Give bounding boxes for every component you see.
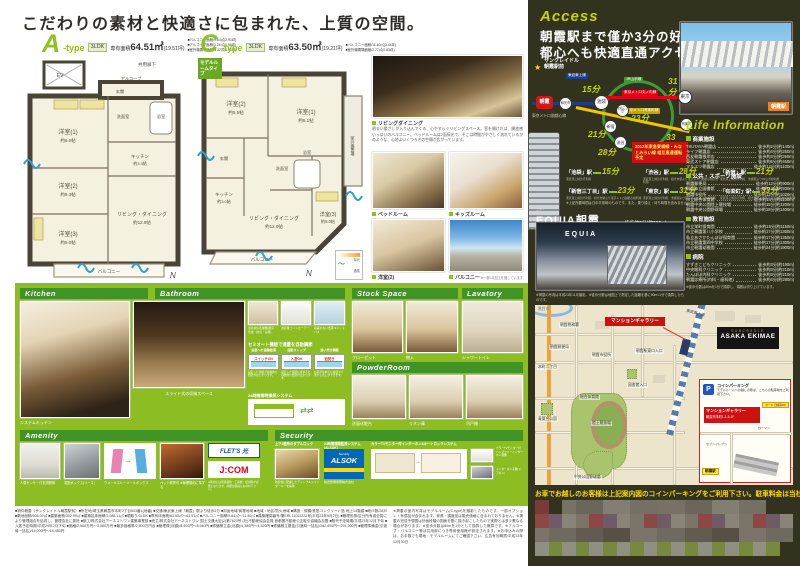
vanity-photo (352, 375, 406, 419)
house-section-icon (254, 404, 294, 418)
room2-size-c: 約5.5帖 (228, 109, 244, 116)
amenity-note: ※利用には別途契約・工事費・使用料が必要となります。詳細は係員にお尋ね下さい。 (208, 481, 260, 492)
future-service-note: 2012年東急東横線・みなとみらい線 相互直通運転予定 (632, 142, 688, 163)
balcony-caption: バルコニー (449, 274, 480, 281)
step3-description: お湯が冷めても適温まで沸かし直しができます。 (314, 371, 345, 378)
dotted-leader (721, 162, 757, 163)
small-park (627, 369, 637, 379)
bath-controller-photo (281, 301, 311, 325)
mosaic-cell (562, 528, 576, 542)
bath-step-3: 追い焚き機能 追焚き お湯が冷めても適温まで沸かし直しができます。 (314, 349, 345, 377)
life-item: マルエツ朝霞店徒歩約14分(約1100m) (686, 164, 794, 169)
water-icon (251, 361, 276, 367)
life-walk-note: ※徒歩分数は80mを1分で換算し、端数は切り上げています。 (686, 285, 794, 290)
storage-photo (406, 301, 458, 353)
mosaic-cell (576, 542, 590, 556)
inset-gallery-box: マンションギャラリー 朝霞市本町1-1-5-1F (704, 407, 760, 423)
kitchen-size-a: 約3.3帖 (133, 160, 147, 166)
mailbox-caption: ウォールスルーメールボックス (104, 481, 156, 485)
mosaic-cell (698, 542, 712, 556)
mosaic-cell (780, 514, 794, 528)
minutes-shibuya: 28分 (598, 146, 616, 158)
water-icon (284, 361, 309, 367)
mosaic-cell (617, 500, 631, 514)
step3-heading: 追い焚き機能 (314, 349, 345, 353)
western-room-caption: 洋室(2) (372, 274, 394, 281)
bedroom-photo (372, 152, 445, 209)
mosaic-cell (576, 514, 590, 528)
compass-c: N (306, 269, 312, 278)
room3-label-a: 洋室(3) (58, 230, 77, 238)
dotted-leader (717, 248, 752, 249)
step1-heading: 浴室への自動給湯 (248, 349, 279, 353)
marunouchi-line-label: 東京メトロ丸ノ内線 (622, 90, 658, 96)
kitchen-label-c: キッチン (215, 192, 233, 197)
access-title: Access (540, 8, 599, 25)
mosaic-cell (630, 514, 644, 528)
mosaic-cell (753, 542, 767, 556)
mosaic-cell (739, 514, 753, 528)
mosaic-cell (698, 514, 712, 528)
parking-icon: P (703, 384, 714, 395)
unit-bath-caption: 段差のない低床ユニットバス (314, 327, 345, 334)
station-photo: 朝霞駅 (680, 22, 792, 114)
mosaic-cell (712, 528, 726, 542)
cabinet-caption: 吊戸棚 (466, 421, 478, 426)
plan-c-layout-badge: 3LDK (246, 43, 266, 52)
wind-label: 通風 (338, 268, 360, 273)
dotted-leader (733, 265, 756, 266)
mosaic-cell (685, 528, 699, 542)
alsok-logo-text: ALSOK (324, 456, 364, 465)
mosaic-cell (549, 528, 563, 542)
mosaic-cell (589, 500, 603, 514)
plan-a-area-tsubo: (19.51坪) (164, 46, 185, 52)
room3-size-a: 約5.0帖 (60, 239, 76, 246)
mosaic-cell (589, 542, 603, 556)
bedroom-caption: ベッドルーム (372, 211, 408, 218)
station-roof-structure (681, 41, 793, 67)
life-information-title: Life Information (686, 118, 794, 132)
censored-region (535, 500, 793, 558)
equia-photo: EQUIA (536, 222, 684, 290)
equia-ruby: エキア (536, 207, 686, 211)
room1-label-a: 洋室(1) (58, 128, 77, 136)
lobby-illustration (375, 453, 415, 473)
dotted-leader (717, 157, 757, 158)
unit-bath-photo (314, 301, 345, 325)
mosaic-cell (698, 528, 712, 542)
toilet-photo (462, 301, 523, 353)
closet (54, 100, 78, 109)
station-ikebukuro: 池袋 (594, 95, 609, 110)
mosaic-cell (644, 514, 658, 528)
person-silhouette-blue (135, 449, 148, 473)
inset-platforms (733, 454, 779, 477)
vent-system-diagram: ⇄⇄ (248, 399, 345, 425)
dotted-leader (713, 152, 757, 153)
map-label-baseball: 中央公園野球場 (573, 475, 602, 480)
station-name: 「池袋」駅 (566, 169, 592, 176)
life-category-title: 商業施設 (686, 135, 794, 143)
powder-section-header: PowderRoom (352, 362, 523, 373)
mosaic-cell (739, 542, 753, 556)
kidsroom-caption: キッズルーム (449, 211, 485, 218)
mosaic-cell (617, 514, 631, 528)
intercom-system-diagram: → (371, 449, 467, 479)
arrow-icon: → (415, 459, 421, 465)
monitor-phone-photo (471, 449, 493, 462)
mosaic-cell (657, 514, 671, 528)
minutes-shinjuku: 21分 (588, 128, 606, 140)
life-item: 朝霞診療所(内科・歯科他)徒歩約4分(約280m) (686, 277, 794, 282)
map-inset: P コインパーキング モデルルームへお越しの際は、こちらの駐車場をご利用下さい。… (699, 379, 791, 483)
mosaic-cell (562, 500, 576, 514)
step2-heading: 自動ストップ (281, 349, 312, 353)
plan-c-area-tsubo: (19.21坪) (322, 46, 343, 52)
station-time-cell: 「池袋」駅15分東武東上線急行利用 (566, 166, 643, 184)
mosaic-cell (671, 542, 685, 556)
closet (34, 218, 43, 240)
brand-main-text: ASAKA EKIMAE (717, 333, 779, 340)
bath-step-1: 浴室への自動給湯 スイッチON 設定した湯量で自動的に給湯がはじまります。 (248, 349, 279, 377)
kitchen-drawer-photo (133, 301, 245, 388)
water-icon (317, 361, 342, 367)
dotted-leader (737, 238, 752, 239)
delivery-box-photo (64, 443, 100, 479)
mosaic-cell (576, 500, 590, 514)
step1-description: 設定した湯量で自動的に給湯がはじまります。 (248, 371, 279, 378)
plan-c-header: C -type 3LDK 専有面積63.50㎡(19.21坪) ■バルコニー面積… (200, 32, 396, 54)
inset-road (730, 432, 733, 484)
living-size-c: 約12.0帖 (265, 223, 283, 230)
mosaic-cell (589, 528, 603, 542)
plan-a-letter: A (42, 34, 60, 54)
plan-c-suffix: -type (221, 43, 243, 54)
vanity-caption: 洗面化粧台 (352, 421, 372, 426)
mosaic-cell (725, 528, 739, 542)
building-block (715, 311, 735, 321)
inset-seven-label: セブンイレブン (706, 442, 727, 446)
kitchen-size-c: 約3.0帖 (217, 198, 231, 204)
map-label-library: 図書館入口 (627, 383, 648, 388)
plan-a-area: 専有面積64.51㎡(19.51坪) (110, 39, 184, 53)
station-asaka: 朝霞 (536, 96, 553, 109)
bath-step-2: 自動ストップ 入浴OK 設定した湯量に達すると自動的に給湯が止まります。 (281, 349, 312, 381)
model-room-tag: モデルルームタイプ (198, 58, 222, 79)
door-phone-caption: インターホン子機(ドアホン) (496, 468, 523, 475)
mosaic-cell (603, 528, 617, 542)
mosaic-cell (630, 542, 644, 556)
bath-label-a: 浴室 (157, 113, 165, 120)
entrance-label-c: 玄関 (220, 155, 228, 162)
life-category-list: 商業施設TSUTAYA朝霞店徒歩約2分(約140m)ライフ朝霞店徒歩約4分(約2… (686, 135, 794, 283)
mosaic-cell (562, 542, 576, 556)
route-line-icon (609, 191, 617, 193)
route-description: 東武東上線急行利用、和光市駅より東京メトロ副都心線利用 (566, 197, 643, 200)
mosaic-cell (603, 514, 617, 528)
route-line-icon (593, 172, 601, 174)
corridor-label-a: 共用廊下 (138, 61, 156, 68)
entrance-illustration (421, 453, 461, 473)
room2-label-c: 洋室(2) (226, 100, 245, 108)
alsok-logo: Security ALSOK (324, 449, 364, 479)
mosaic-cell (535, 528, 549, 542)
step2-tub-icon: 入浴OK (281, 354, 312, 370)
mosaic-cell (535, 500, 549, 514)
station-wakoshi: 和光市 (559, 97, 572, 110)
page-title: こだわりの素材と快適さに包まれた、上質の空間。 (22, 10, 425, 34)
outdoor-unit-label-c: 室外機置場 (351, 135, 356, 157)
mosaic-cell (671, 500, 685, 514)
facility-name: マルエツ朝霞店 (686, 164, 715, 169)
inset-road (700, 432, 792, 435)
floorplan-a: 共用廊下 EV アルコーブ 洋室(1) 約6.0帖 洋室(2) 約5.3帖 洋室… (20, 56, 188, 282)
dotted-leader (717, 190, 754, 191)
elevator-label: EV (57, 73, 64, 79)
route-description: 東武東上線急行利用 (566, 178, 643, 181)
storage-caption: 物入 (406, 355, 414, 360)
facility-name: 市立朝霞幼稚園 (686, 245, 715, 250)
mosaic-cell (657, 500, 671, 514)
mailbox-illustration: → (104, 443, 156, 479)
flets-logo-text: FLET'S 光 (220, 446, 248, 455)
plan-c-notes: ■バルコニー面積/11.40㎡(3.44坪) ■室外機置場面積/2.77㎡(0.… (345, 43, 396, 53)
bath-controller-caption: 浴室用コントローラー (281, 327, 311, 331)
life-information: Life Information 商業施設TSUTAYA朝霞店徒歩約2分(約14… (686, 118, 794, 289)
map-label-gymnasium: 総合体育館 (579, 395, 600, 400)
inset-lawson-label: ローソン (758, 426, 770, 430)
mosaic-cell (753, 514, 767, 528)
cabinet-photo (466, 375, 523, 419)
person-silhouette-pink (111, 449, 124, 473)
dotted-leader (717, 200, 752, 201)
room2-label-a: 洋室(2) (58, 182, 77, 190)
route-line-icon (670, 191, 678, 193)
right-page: Access 朝霞駅まで僅か3分の好立地 都心へも快適直通アクセス 朝霞駅 ★ … (528, 0, 800, 566)
map-label-athletics: 陸上競技場 (591, 421, 612, 426)
alsok-yellow-band (324, 468, 364, 472)
facility-name: 朝霞中央公園野球場 (686, 207, 723, 212)
mosaic-cell (576, 528, 590, 542)
mosaic-cell (739, 500, 753, 514)
alsok-tagline: Security (324, 449, 364, 456)
plan-legend: 採光 〜 通風 (335, 250, 363, 280)
wash-label-a: 洗面室 (117, 113, 130, 120)
life-category-title: 病院 (686, 253, 794, 261)
sensor-light-caption: 人感センサー付玄関照明 (20, 481, 62, 485)
mosaic-cell (657, 542, 671, 556)
mosaic-cell (671, 514, 685, 528)
equia-sign-text: EQUIA (565, 231, 597, 238)
sensor-light-photo (20, 443, 60, 479)
photo-shoot-note: ※掲載の写真は平成23年11月撮影。※徒歩分数は地図上で測定した距離を基に80m… (536, 293, 686, 302)
route-line-icon (670, 172, 678, 174)
station-minutes: 15分 (602, 166, 619, 177)
step3-tub-icon: 追焚き (314, 354, 345, 370)
plan-a-suffix: -type (63, 43, 85, 54)
dotted-leader (725, 211, 752, 212)
tobu-line-label: 東武東上線 (566, 73, 588, 79)
building-name: サンクレイドル 朝霞駅前 (544, 58, 579, 71)
mosaic-cell (549, 514, 563, 528)
station-minutes: 23分 (618, 185, 635, 196)
plan-c-area: 専有面積63.50㎡(19.21坪) (268, 39, 342, 53)
life-item: 市立朝霞幼稚園徒歩約24分(約1900m) (686, 245, 794, 250)
mosaic-cell (739, 528, 753, 542)
amenity-section-header: Amenity (20, 430, 268, 441)
station-name: 「渋谷」駅 (643, 169, 669, 176)
mosaic-cell (766, 542, 780, 556)
alcove-label-a: アルコーブ (121, 75, 142, 82)
walk-time: 徒歩約24分(約1900m) (754, 245, 794, 250)
living-size-a: 約12.9帖 (133, 219, 151, 226)
escalator-shape (607, 245, 667, 285)
dotted-leader (717, 168, 752, 169)
living-dining-photo (372, 55, 523, 118)
stock-section-header: Stock Space (352, 288, 458, 299)
mosaic-cell (725, 500, 739, 514)
parking-instruction-note: お車でお越しのお客様は上記案内図のコインパーキングをご利用下さい。駐車料金は当社… (535, 488, 793, 498)
monitor-phone-caption: カラーTVモニター付ハンズフリーインターホン親機 (496, 447, 523, 458)
door-phone-photo (471, 466, 493, 479)
linen-photo (409, 375, 463, 419)
dotted-leader (725, 233, 752, 234)
walk-time: 徒歩約4分(約280m) (758, 277, 794, 282)
living-dining-description: 明るい陽ざしが入り込んでくる、心やすらぐリビングスペース。窓を開ければ、開放感い… (372, 127, 523, 144)
mosaic-cell (603, 500, 617, 514)
mosaic-cell (630, 528, 644, 542)
wind-mark (346, 192, 362, 200)
mosaic-cell (766, 514, 780, 528)
bath-dryer-photo (248, 301, 278, 325)
station-photo-label: 朝霞駅 (768, 102, 789, 111)
station-time-cell: 「新宿三丁目」駅23分東武東上線急行利用、和光市駅より東京メトロ副都心線利用 (566, 185, 643, 200)
step1-tub-icon: スイッチON (248, 354, 279, 370)
station-shinjuku3: 新宿三丁目 (616, 104, 629, 117)
building-block (745, 315, 761, 323)
mosaic-cell (617, 528, 631, 542)
security-section-header: Security (275, 430, 523, 441)
flets-logo: FLET'S 光 (208, 443, 260, 458)
gallery-map-label: マンションギャラリー (605, 317, 665, 326)
closet-caption: クローゼット (352, 355, 376, 360)
area-map: マンションギャラリー SUNCRADLE ASAKA EKIMAE 朝霞市役所 … (535, 305, 793, 485)
star-icon: ★ (534, 64, 541, 72)
small-park (541, 403, 553, 415)
double-lock-title: 上下2箇所のダブルロック (275, 442, 321, 446)
mosaic-cell (685, 542, 699, 556)
mosaic-cell (603, 542, 617, 556)
closet-photo (352, 301, 403, 353)
mosaic-cell (753, 528, 767, 542)
mosaic-cell (725, 542, 739, 556)
compass-a: N (170, 271, 176, 280)
lavatory-section-header: Lavatory (462, 288, 523, 299)
walk-time: 徒歩約18分(約1400m) (754, 207, 794, 212)
brochure-sheet: こだわりの素材と快適さに包まれた、上質の空間。 A -type 3LDK 専有面… (0, 0, 800, 566)
station-time-row: 「池袋」駅15分 (566, 166, 643, 177)
mosaic-cell (725, 514, 739, 528)
room3-label-c: 洋室(3) (320, 210, 337, 218)
inset-card-tag: カードで精算OK (762, 402, 789, 408)
map-label-aobadai-park: 青葉台公園 (537, 417, 558, 422)
map-label-river: 黒目川 (537, 307, 550, 312)
vent-system-title: 24時間常時換気システム (248, 393, 345, 398)
dotted-leader (708, 184, 754, 185)
inset-parking-text: モデルルームへお越しの際は、こちらの駐車場をご利用下さい。 (717, 389, 789, 397)
step2-description: 設定した湯量に達すると自動的に給湯が止まります。 (281, 371, 312, 381)
bath-dryer-caption: 浴室換気乾燥機(暖房・乾燥・換気・涼風) (248, 327, 278, 334)
mosaic-cell (712, 542, 726, 556)
inset-gallery-address: 朝霞市本町1-1-5-1F (706, 414, 758, 419)
plan-a-area-label: 専有面積 (110, 46, 130, 52)
fukutoshin-line-label: 東京メトロ副都心線 (532, 114, 566, 119)
lock-photo (275, 449, 319, 479)
wash-label-c: 洗面室 (276, 165, 289, 172)
toilet-caption: シャワートイレ (462, 355, 490, 360)
map-label-tax-office: 朝霞税務署 (559, 323, 580, 328)
dotted-leader (733, 205, 752, 206)
living-dining-caption: リビングダイニング (372, 120, 423, 127)
kidsroom-photo (449, 152, 523, 209)
minutes-shinjuku3: 23分 (631, 112, 649, 124)
plan-c-area-value: 63.50㎡ (288, 42, 321, 53)
closet (80, 100, 104, 109)
mosaic-cell (685, 500, 699, 514)
bathtub-c (294, 160, 320, 188)
features-block: Kitchen Bathroom Stock Space Lavatory シス… (15, 283, 528, 506)
minutes-ikebukuro: 15分 (582, 83, 600, 95)
mosaic-cell (685, 514, 699, 528)
station-name: 「新宿三丁目」駅 (566, 188, 608, 195)
brand-box: SUNCRADLE ASAKA EKIMAE (717, 327, 779, 349)
delivery-box-caption: 宅配ボックス(リース) (64, 481, 102, 485)
mosaic-cell (644, 528, 658, 542)
map-road (535, 361, 793, 364)
orange-road (547, 305, 551, 485)
entrance-label-a: 玄関 (116, 88, 124, 95)
plan-a-layout-badge: 3LDK (88, 43, 108, 52)
mosaic-cell (644, 542, 658, 556)
plan-c-note-2: ■室外機置場面積/2.77㎡(0.83坪) (345, 48, 396, 53)
dotted-leader (736, 281, 757, 282)
life-category-title: 教育施設 (686, 215, 794, 223)
living-label-c: リビング・ダイニング (249, 215, 299, 222)
mosaic-cell (535, 514, 549, 528)
living-label-a: リビング・ダイニング (117, 211, 167, 218)
walk-time: 徒歩約14分(約1100m) (754, 164, 794, 169)
mosaic-cell (712, 514, 726, 528)
western-room-photo (372, 219, 445, 272)
airflow-arrows-icon: ⇄⇄ (300, 407, 313, 415)
room1-label-c: 洋室(1) (296, 108, 315, 116)
jcom-logo: J:COM (208, 461, 260, 478)
station-tokyo: 東京 (678, 90, 692, 104)
arrow-icon: → (124, 457, 132, 465)
map-label-post-office: 朝霞郵便局 (549, 345, 570, 350)
dotted-leader (733, 275, 756, 276)
mosaic-cell (562, 514, 576, 528)
station-name: 「東京」駅 (643, 188, 669, 195)
map-label-east-exit: 朝霞駅東口入口 (635, 349, 664, 354)
plan-c-letter: C (200, 34, 218, 54)
inset-station-tag: 朝霞駅 (702, 468, 719, 475)
left-page: こだわりの素材と快適さに包まれた、上質の空間。 A -type 3LDK 専有面… (0, 0, 528, 566)
kitchen-label-a: キッチン (131, 154, 149, 159)
mosaic-cell (698, 500, 712, 514)
dotted-leader (708, 195, 751, 196)
